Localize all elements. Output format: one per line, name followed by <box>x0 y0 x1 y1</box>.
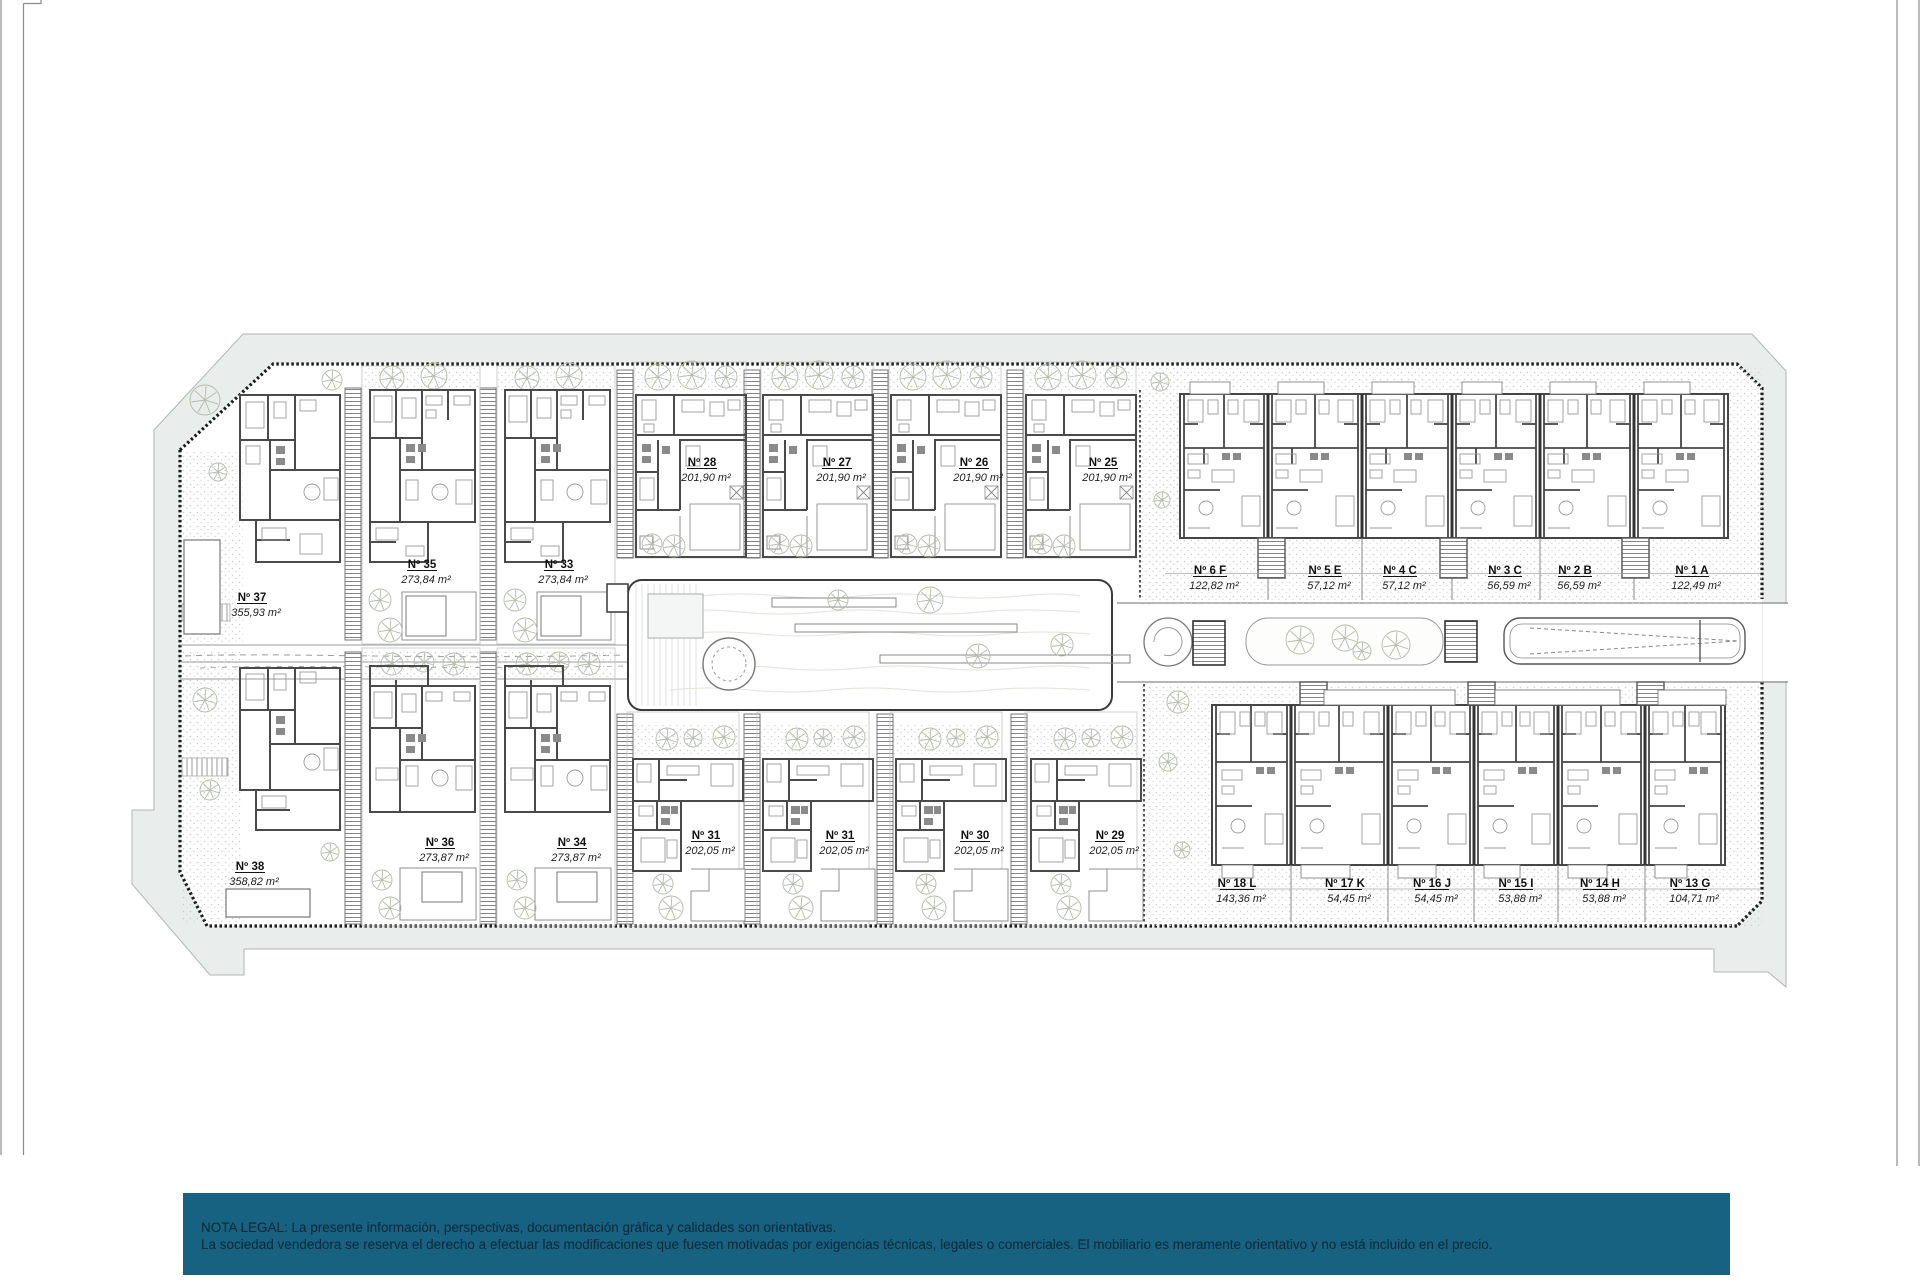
svg-text:Nº 1 A: Nº 1 A <box>1675 565 1708 577</box>
svg-text:201,90 m²: 201,90 m² <box>952 472 1003 484</box>
svg-text:NOTA LEGAL: La presente inform: NOTA LEGAL: La presente información, per… <box>201 1220 836 1235</box>
svg-text:Nº 35: Nº 35 <box>408 559 437 571</box>
svg-text:273,87 m²: 273,87 m² <box>550 852 601 864</box>
svg-text:Nº 29: Nº 29 <box>1096 830 1125 842</box>
svg-text:54,45 m²: 54,45 m² <box>1414 893 1458 905</box>
svg-text:Nº 6 F: Nº 6 F <box>1194 565 1226 577</box>
svg-text:104,71 m²: 104,71 m² <box>1669 893 1719 905</box>
svg-text:202,05 m²: 202,05 m² <box>953 845 1004 857</box>
svg-text:143,36 m²: 143,36 m² <box>1216 893 1266 905</box>
svg-text:Nº 13 G: Nº 13 G <box>1670 878 1711 890</box>
svg-text:202,05 m²: 202,05 m² <box>684 845 735 857</box>
svg-text:Nº 16 J: Nº 16 J <box>1413 878 1451 890</box>
svg-text:Nº 18 L: Nº 18 L <box>1218 878 1257 890</box>
svg-text:Nº 15 I: Nº 15 I <box>1499 878 1534 890</box>
svg-text:122,49 m²: 122,49 m² <box>1671 580 1721 592</box>
svg-text:Nº 33: Nº 33 <box>545 559 574 571</box>
svg-text:Nº 14 H: Nº 14 H <box>1580 878 1620 890</box>
svg-text:358,82 m²: 358,82 m² <box>229 876 279 888</box>
svg-text:Nº 2 B: Nº 2 B <box>1558 565 1592 577</box>
svg-text:201,90 m²: 201,90 m² <box>1081 472 1132 484</box>
svg-text:Nº 37: Nº 37 <box>238 592 267 604</box>
svg-text:Nº 30: Nº 30 <box>961 830 990 842</box>
svg-text:122,82 m²: 122,82 m² <box>1189 580 1239 592</box>
svg-text:53,88 m²: 53,88 m² <box>1582 893 1626 905</box>
svg-text:54,45 m²: 54,45 m² <box>1327 893 1371 905</box>
svg-text:Nº 3 C: Nº 3 C <box>1488 565 1522 577</box>
svg-text:201,90 m²: 201,90 m² <box>680 472 731 484</box>
svg-text:Nº 34: Nº 34 <box>558 837 587 849</box>
svg-text:Nº 4 C: Nº 4 C <box>1383 565 1417 577</box>
svg-text:355,93 m²: 355,93 m² <box>231 607 281 619</box>
svg-text:56,59 m²: 56,59 m² <box>1487 580 1531 592</box>
svg-text:Nº 31: Nº 31 <box>692 830 721 842</box>
svg-text:273,84 m²: 273,84 m² <box>400 574 451 586</box>
svg-text:273,87 m²: 273,87 m² <box>418 852 469 864</box>
svg-text:Nº 5 E: Nº 5 E <box>1309 565 1342 577</box>
svg-text:202,05 m²: 202,05 m² <box>1088 845 1139 857</box>
svg-text:56,59 m²: 56,59 m² <box>1557 580 1601 592</box>
svg-text:273,84 m²: 273,84 m² <box>537 574 588 586</box>
svg-text:Nº 25: Nº 25 <box>1089 457 1118 469</box>
svg-text:201,90 m²: 201,90 m² <box>815 472 866 484</box>
svg-text:Nº 31: Nº 31 <box>826 830 855 842</box>
svg-text:57,12 m²: 57,12 m² <box>1382 580 1426 592</box>
svg-text:La sociedad vendedora se reser: La sociedad vendedora se reserva el dere… <box>201 1237 1492 1252</box>
svg-text:Nº 38: Nº 38 <box>236 861 265 873</box>
svg-text:53,88 m²: 53,88 m² <box>1498 893 1542 905</box>
svg-text:Nº 36: Nº 36 <box>426 837 455 849</box>
svg-text:Nº 28: Nº 28 <box>688 457 717 469</box>
svg-text:Nº 17 K: Nº 17 K <box>1325 878 1366 890</box>
svg-text:Nº 26: Nº 26 <box>960 457 989 469</box>
svg-text:Nº 27: Nº 27 <box>823 457 852 469</box>
svg-text:202,05 m²: 202,05 m² <box>818 845 869 857</box>
svg-text:57,12 m²: 57,12 m² <box>1307 580 1351 592</box>
